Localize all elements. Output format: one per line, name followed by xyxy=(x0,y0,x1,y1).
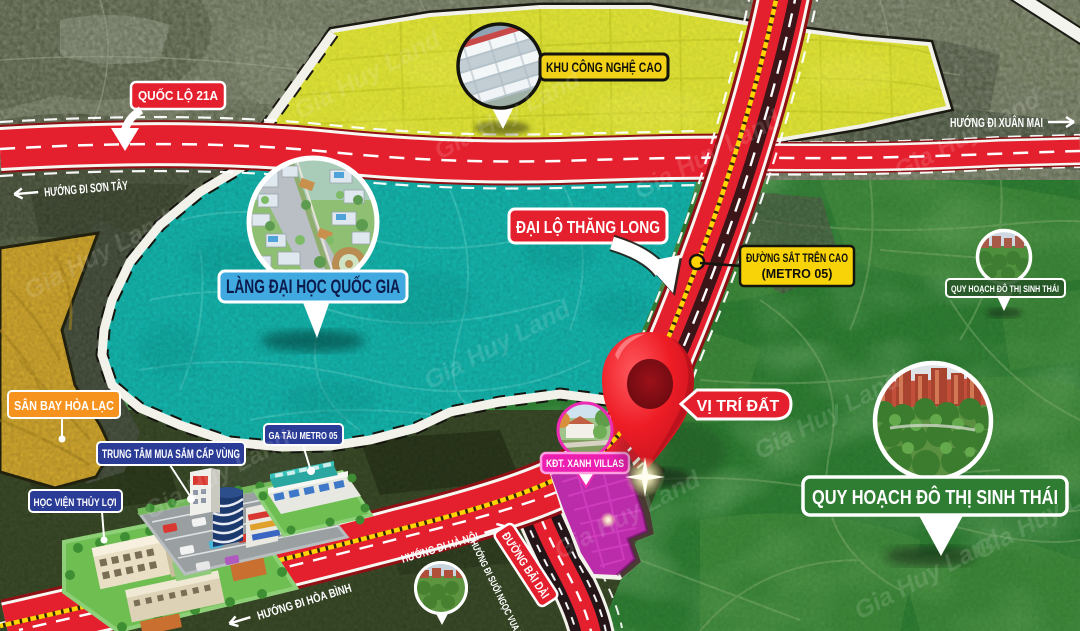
svg-text:QUỐC LỘ 21A: QUỐC LỘ 21A xyxy=(138,88,219,103)
svg-text:LÀNG ĐẠI HỌC QUỐC GIA: LÀNG ĐẠI HỌC QUỐC GIA xyxy=(226,276,400,298)
svg-text:ĐƯỜNG SẮT TRÊN CAO: ĐƯỜNG SẮT TRÊN CAO xyxy=(746,252,848,265)
svg-text:SÂN BAY HÒA LẠC: SÂN BAY HÒA LẠC xyxy=(14,398,115,413)
svg-text:QUY HOẠCH ĐÔ THỊ SINH THÁI: QUY HOẠCH ĐÔ THỊ SINH THÁI xyxy=(951,283,1059,294)
svg-text:ĐẠI LỘ THĂNG LONG: ĐẠI LỘ THĂNG LONG xyxy=(516,216,660,237)
svg-text:QUY HOẠCH ĐÔ THỊ SINH THÁI: QUY HOẠCH ĐÔ THỊ SINH THÁI xyxy=(812,485,1058,509)
svg-text:(METRO 05): (METRO 05) xyxy=(762,267,833,281)
svg-text:VỊ TRÍ ĐẤT: VỊ TRÍ ĐẤT xyxy=(697,396,780,415)
svg-text:KĐT. XANH VILLAS: KĐT. XANH VILLAS xyxy=(546,458,624,470)
svg-text:HỌC VIỆN THỦY LỢI: HỌC VIỆN THỦY LỢI xyxy=(34,496,117,509)
